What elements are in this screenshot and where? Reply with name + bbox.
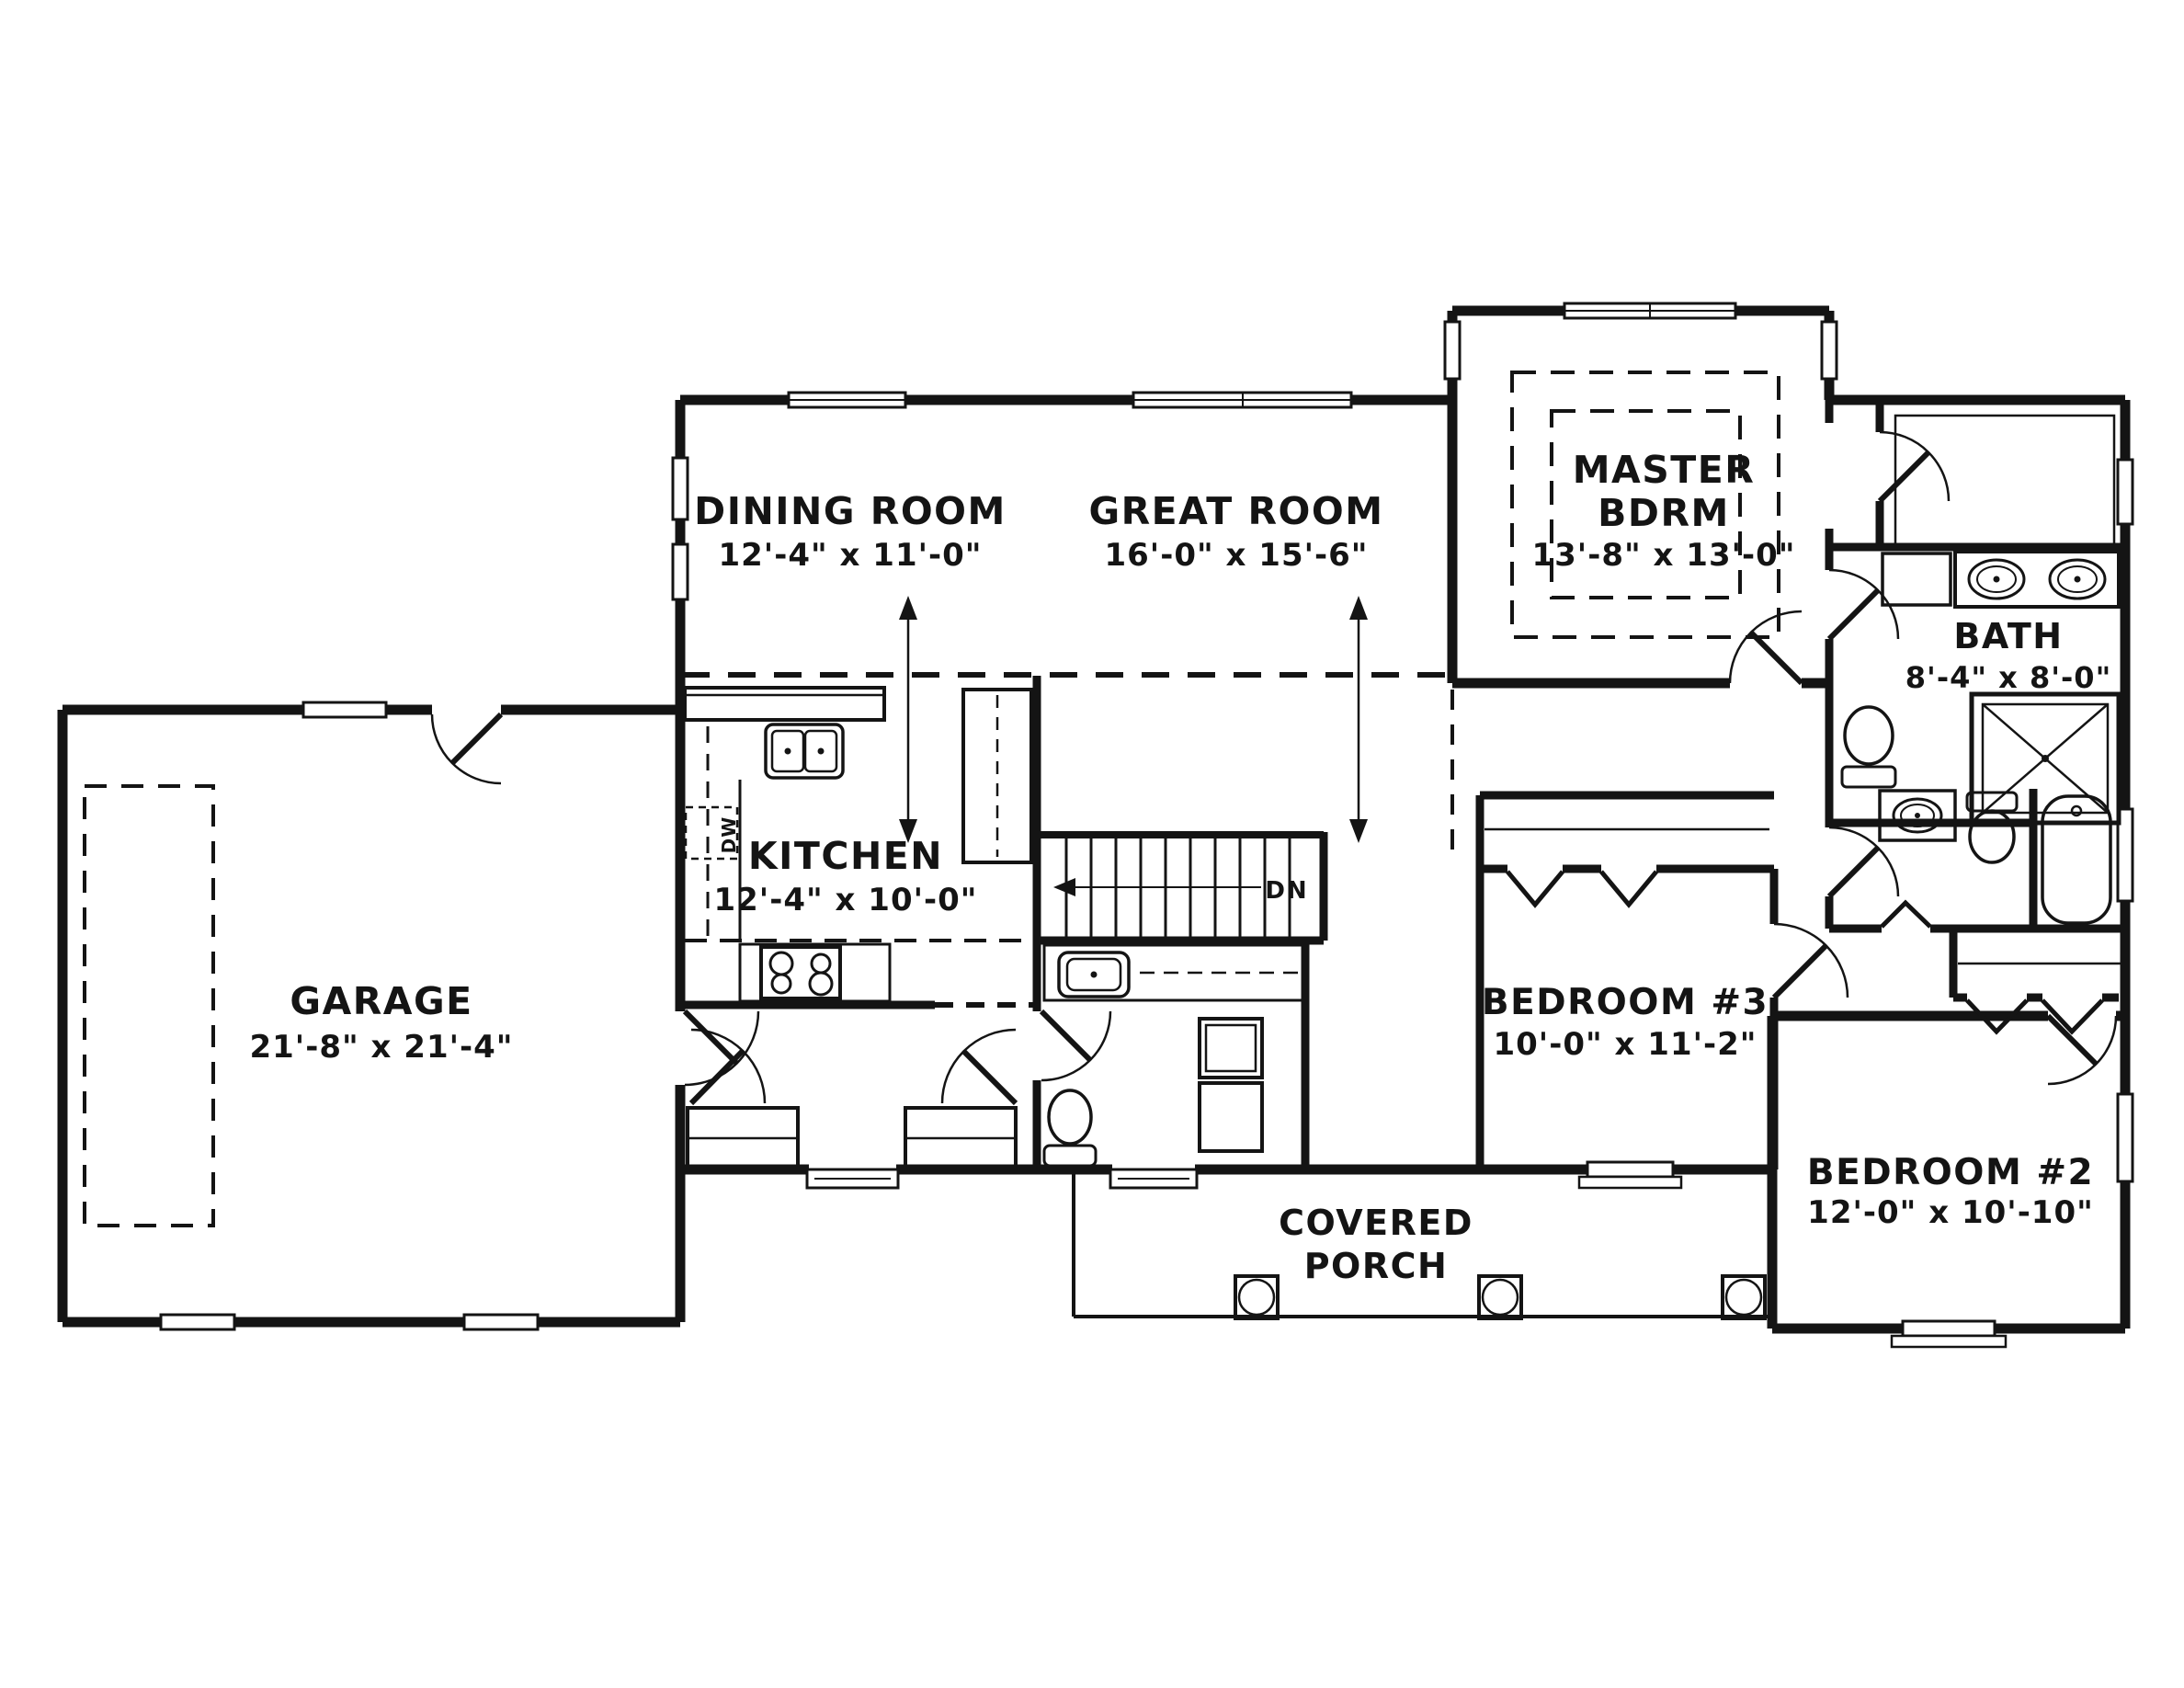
- kitchen-dims: 12'-4" x 10'-0": [713, 882, 977, 918]
- floor-plan-drawing: DINING ROOM 12'-4" x 11'-0" GREAT ROOM 1…: [0, 0, 2184, 1688]
- linen-cabinet: [1883, 553, 1951, 605]
- hall-bath-fixtures: [1880, 791, 2110, 923]
- hall-toilet-tank: [1967, 793, 2017, 811]
- dishwasher-note: DW: [718, 816, 740, 854]
- porch-column: [1479, 1276, 1521, 1318]
- bedroom2-dims: 12'-0" x 10'-10": [1807, 1194, 2094, 1231]
- kitchen-bar-counter: [685, 688, 884, 720]
- master-toilet-tank: [1842, 767, 1895, 787]
- dryer: [1200, 1083, 1262, 1151]
- bedroom3-dims: 10'-0" x 11'-2": [1493, 1026, 1757, 1063]
- bedroom3-closet-bifold-doors: [1507, 872, 1656, 905]
- garage-dims: 21'-8" x 21'-4": [249, 1029, 513, 1066]
- kitchen-label: KITCHEN: [748, 834, 943, 878]
- porch-column: [1723, 1276, 1765, 1318]
- porch-label-2: PORCH: [1304, 1246, 1449, 1286]
- dining-room-label: DINING ROOM: [694, 489, 1007, 533]
- covered-porch: [1074, 1169, 1772, 1318]
- porch-column: [1235, 1276, 1278, 1318]
- great-room-dims: 16'-0" x 15'-6": [1104, 537, 1368, 574]
- master-toilet: [1845, 707, 1893, 764]
- washer: [1200, 1019, 1262, 1078]
- double-vanity: [1955, 552, 2119, 607]
- walk-in-closet-shelf: [1895, 416, 2114, 546]
- bedroom3-label: BEDROOM #3: [1482, 982, 1769, 1023]
- master-bdrm-dims: 13'-8" x 13'-0": [1531, 537, 1795, 574]
- garage-storage-outline: [85, 786, 213, 1226]
- vault-arrows: [899, 596, 1368, 843]
- closets: [688, 829, 2121, 1169]
- tub-faucet: [2072, 806, 2081, 815]
- room-labels: DINING ROOM 12'-4" x 11'-0" GREAT ROOM 1…: [249, 448, 2111, 1286]
- stairs-dn-note: DN: [1265, 877, 1308, 905]
- floor-plan-canvas: DINING ROOM 12'-4" x 11'-0" GREAT ROOM 1…: [0, 0, 2184, 1688]
- bedroom2-label: BEDROOM #2: [1807, 1152, 2094, 1193]
- bath-label: BATH: [1953, 616, 2063, 656]
- great-room-label: GREAT ROOM: [1088, 489, 1383, 533]
- dining-room-dims: 12'-4" x 11'-0": [718, 537, 982, 574]
- porch-label-1: COVERED: [1279, 1203, 1473, 1243]
- bath-dims: 8'-4" x 8'-0": [1905, 660, 2111, 695]
- hall-toilet: [1970, 811, 2014, 862]
- halfbath-toilet: [1049, 1090, 1091, 1144]
- master-bdrm-label-1: MASTER: [1573, 448, 1756, 492]
- stairs-direction-arrow: [1053, 878, 1075, 896]
- master-bdrm-label-2: BDRM: [1598, 491, 1730, 535]
- hall-linen-bifold-door: [1882, 903, 1930, 927]
- garage-label: GARAGE: [290, 979, 472, 1023]
